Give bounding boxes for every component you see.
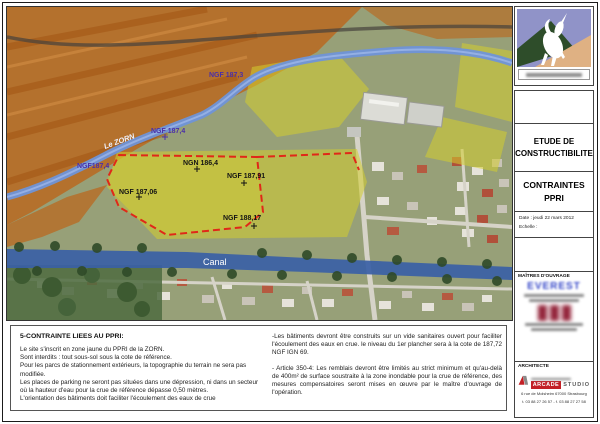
owner-name: EVEREST — [518, 281, 590, 292]
notes-right-column: -Les bâtiments devront être construits s… — [272, 333, 502, 397]
architect-phone: t. 03 88 27 26 57 - f. 03 88 27 27 58 — [518, 399, 590, 405]
project-title-line2: CONSTRUCTIBILITE — [515, 148, 593, 160]
redacted-owner-line-1 — [524, 294, 584, 297]
architect-name-gray: STUDIO — [563, 382, 590, 388]
owner-header: MAÎTRES D'OUVRAGE — [518, 274, 590, 279]
redacted-owner-line-4 — [531, 328, 577, 331]
aerial-map: NGF 187,3 Le ZORN NGF 187,4 NGF187,4 NGN… — [6, 6, 513, 321]
ppri-notes-box: 5-CONTRAINTE LIEES AU PPRI: Le site s'in… — [10, 325, 507, 411]
label-ngf-187-3: NGF 187,3 — [209, 72, 243, 79]
city-logo-box — [514, 6, 594, 86]
label-ngn-186-4: NGN 186,4 — [183, 160, 218, 167]
sheet-title-line2: PPRI — [544, 192, 564, 205]
notes-right-p2: - Article 350-4: Les remblais devront êt… — [272, 365, 502, 398]
sheet-title-box: CONTRAINTES PPRI — [514, 171, 594, 212]
notes-left-p5: L'orientation des bâtiments doit facilit… — [20, 395, 263, 403]
architect-box: ARCHITECTE ARCADE STUDIO 6 rue de Molshe… — [514, 361, 594, 418]
title-block-panel: ETUDE DE CONSTRUCTIBILITE CONTRAINTES PP… — [514, 6, 596, 418]
owner-secondary-logo — [518, 305, 590, 321]
notes-left-p4: Les places de parking ne seront pas situ… — [20, 379, 263, 395]
notes-left-p3: Pour les parcs de stationnement extérieu… — [20, 362, 263, 378]
redacted-city-name — [526, 73, 582, 77]
architect-header: ARCHITECTE — [518, 364, 590, 369]
notes-right-p1: -Les bâtiments devront être construits s… — [272, 333, 502, 358]
label-ngf-187-06: NGF 187,06 — [119, 189, 157, 196]
notes-title: 5-CONTRAINTE LIEES AU PPRI: — [20, 333, 124, 340]
redacted-owner-line-2 — [529, 299, 579, 302]
arcade-studio-logo-icon — [518, 371, 529, 389]
sheet-title-line1: CONTRAINTES — [523, 179, 584, 192]
architect-name-red: ARCADE — [531, 381, 562, 389]
empty-box-2 — [514, 237, 594, 272]
owner-box: MAÎTRES D'OUVRAGE EVEREST — [514, 271, 594, 362]
redacted-architect-tagline — [531, 378, 571, 381]
notes-left-p2: Sont interdits : tout sous-sol sous la c… — [20, 354, 263, 362]
empty-box-1 — [514, 90, 594, 124]
label-ngf-187-4b: NGF187,4 — [77, 163, 109, 170]
plan-sheet: NGF 187,3 Le ZORN NGF 187,4 NGF187,4 NGN… — [0, 0, 600, 424]
label-ngf-188-17: NGF 188,17 — [223, 215, 261, 222]
architect-address: 6 rue de Molsheim 67000 Strasbourg — [518, 391, 590, 397]
date-scale-box: Date : jeudi 22 mars 2012 Echelle : — [514, 211, 594, 238]
notes-left-p1: Le site s'inscrit en zone jaune du PPRI … — [20, 346, 263, 354]
unicorn-logo — [517, 9, 591, 67]
date-label: Date : jeudi 22 mars 2012 — [519, 215, 589, 224]
label-ngf-187-91: NGF 187,91 — [227, 173, 265, 180]
city-name-caption — [518, 69, 590, 80]
project-title-line1: ETUDE DE — [534, 136, 574, 148]
scale-label: Echelle : — [519, 224, 589, 233]
redacted-owner-line-3 — [525, 323, 583, 326]
project-title-box: ETUDE DE CONSTRUCTIBILITE — [514, 123, 594, 172]
label-canal: Canal — [203, 257, 227, 267]
label-ngf-187-4: NGF 187,4 — [151, 128, 185, 135]
notes-left-column: Le site s'inscrit en zone jaune du PPRI … — [20, 346, 263, 403]
